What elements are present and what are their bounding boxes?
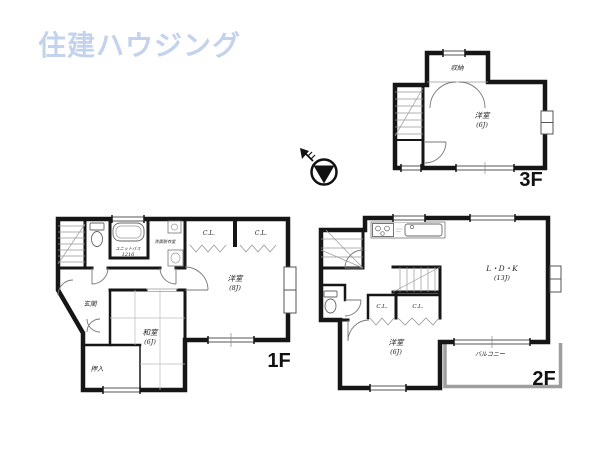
room-label-yoshitsu-3f: 洋室: [475, 111, 491, 120]
floor-plan-1f: ユニットバス 1216 洗面脱衣室 C.L. C.L. 洋室 (8J) 和室 (…: [50, 212, 300, 402]
room-label-cl-left-2f: C.L.: [376, 304, 387, 310]
room-label-oshiire: 押入: [91, 365, 105, 373]
walls-2f: [321, 218, 548, 388]
floor-label-3f: 3F: [519, 169, 542, 191]
room-label-shunou: 収納: [451, 64, 465, 72]
room-label-senmen: 洗面脱衣室: [155, 239, 177, 244]
north-arrow: [300, 148, 315, 161]
room-label-yoshitsu-1f-size: (8J): [229, 284, 241, 292]
room-label-cl-left-1f: C.L.: [203, 230, 215, 237]
floor-plan-3f: 収納 洋室 (6J) 3F: [388, 42, 568, 197]
toilet-icon-2f: [324, 291, 337, 313]
room-label-yoshitsu-2f-size: (6J): [390, 348, 402, 356]
room-label-cl-right-2f: C.L.: [412, 304, 423, 310]
room-label-washitsu: 和室: [143, 328, 159, 337]
room-label-yoshitsu-3f-size: (6J): [476, 121, 488, 129]
room-label-genkan: 玄関: [84, 300, 99, 308]
toilet-icon-1f: [90, 223, 104, 247]
room-label-cl-right-1f: C.L.: [255, 230, 267, 237]
vanity-sink-icon: [168, 250, 183, 266]
room-label-washitsu-size: (6J): [144, 338, 156, 346]
walls-3f: [395, 53, 545, 168]
floor-label-2f: 2F: [532, 368, 555, 390]
room-label-ldk-size: (13J): [494, 274, 510, 282]
room-label-balcony: バルコニー: [475, 351, 506, 358]
kitchen-counter: [371, 222, 445, 238]
floorplan-page: 住建ハウジング: [0, 0, 600, 450]
compass-icon: [297, 147, 345, 191]
room-label-ldk: L・D・K: [485, 264, 518, 273]
washer-icon: [168, 221, 181, 233]
room-label-yoshitsu-2f: 洋室: [389, 338, 405, 347]
floor-plan-2f: L・D・K (13J) C.L. C.L. 洋室 (6J) バルコニー 2F: [312, 205, 572, 400]
room-label-yoshitsu-1f: 洋室: [228, 274, 244, 283]
company-logo: 住建ハウジング: [38, 24, 241, 64]
room-label-bath-size: 1216: [122, 252, 136, 258]
room-label-bath: ユニットバス: [115, 246, 141, 251]
floor-label-1f: 1F: [267, 350, 290, 372]
